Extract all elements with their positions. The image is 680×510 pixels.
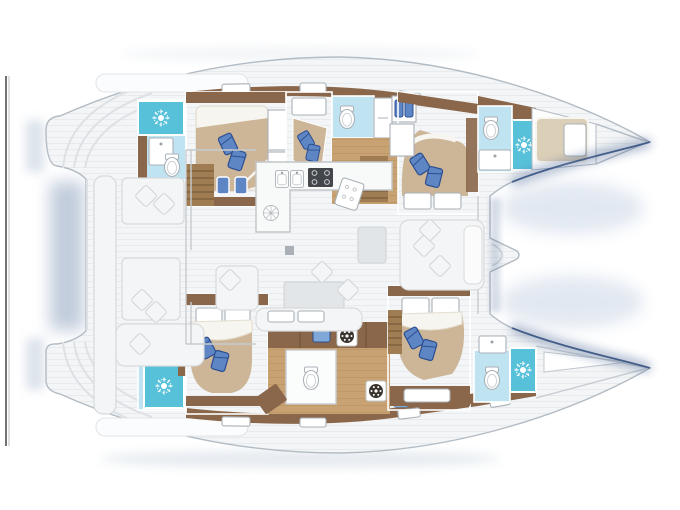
separate-wc-room: [286, 350, 336, 404]
berth-pillow: [402, 298, 429, 315]
stern-gap-shading: [50, 182, 84, 330]
top-aft-bathroom: [138, 100, 186, 180]
companionway-steps: [186, 164, 214, 206]
vent-hatch-icon: [264, 206, 279, 221]
sideboard: [358, 227, 386, 263]
page-edge-line: [6, 76, 9, 446]
stove-burners-icon: [308, 168, 333, 187]
sink-icon: [479, 150, 511, 170]
stool: [217, 177, 229, 194]
berth-pillow: [564, 124, 586, 156]
bottom-utility-area: [255, 322, 408, 415]
trampoline-shading-top: [500, 182, 644, 234]
top-mid-bathroom: [332, 96, 392, 138]
forward-seating: [400, 219, 484, 290]
catamaran-floorplan: [0, 0, 680, 510]
wardrobe: [268, 110, 286, 150]
saloon-sofa: [256, 308, 362, 331]
fridge-cabinet: [390, 124, 414, 156]
sink-icon: [479, 336, 506, 353]
trampoline-shading-bottom: [500, 276, 644, 328]
chaise-seat: [216, 266, 258, 310]
stool: [235, 177, 247, 194]
floorplan-svg: [0, 0, 680, 510]
berth-pillow: [404, 193, 431, 209]
bench: [404, 389, 450, 402]
transom-bench: [94, 176, 116, 414]
floor-hatch: [285, 246, 294, 255]
top-forward-bathroom: [478, 96, 536, 172]
saloon-table: [284, 282, 344, 308]
berth-pillow: [292, 98, 326, 115]
hull-steps: [388, 310, 402, 354]
berth-pillow: [434, 193, 461, 209]
